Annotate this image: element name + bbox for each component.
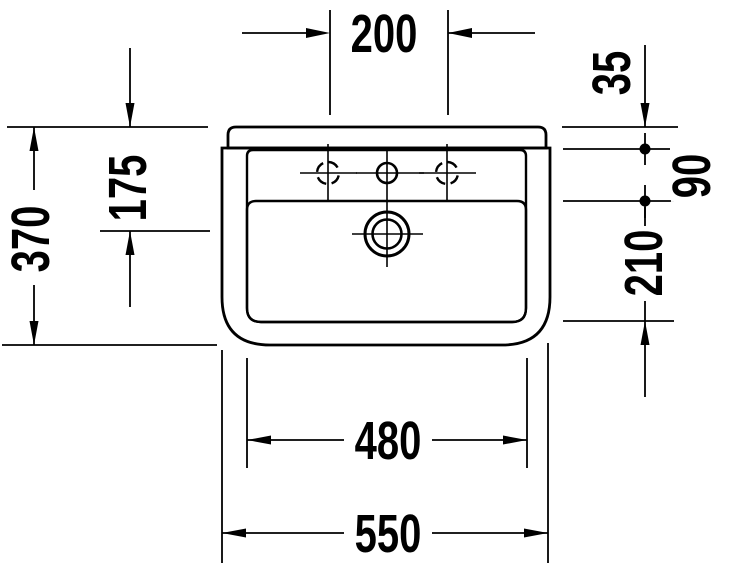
reference-dot-2 xyxy=(640,196,651,207)
reference-dot-1 xyxy=(640,144,651,155)
washbasin-outlines xyxy=(222,127,550,345)
dim-label-overall-depth: 370 xyxy=(10,202,52,276)
arrow-550-right xyxy=(524,529,548,538)
basin-outer-outline xyxy=(222,148,550,345)
arrow-480-left xyxy=(247,436,271,445)
arrow-480-right xyxy=(503,436,527,445)
basin-rear-rim-band xyxy=(228,127,546,148)
dim-label-bowl-front: 210 xyxy=(623,226,665,300)
tap-holes-and-drain xyxy=(300,144,476,267)
arrow-210-up xyxy=(641,321,650,345)
dimension-arrowheads xyxy=(30,28,651,538)
arrow-200-right xyxy=(448,28,472,38)
dim-label-tap-spacing: 200 xyxy=(347,13,421,55)
arrow-370-down xyxy=(30,321,39,345)
arrow-175-up xyxy=(126,231,135,255)
dim-label-drain-from-rear: 175 xyxy=(107,151,149,225)
arrow-35-down xyxy=(641,103,650,127)
dim-label-inner-width: 480 xyxy=(351,420,425,462)
arrow-200-left xyxy=(306,28,330,38)
dim-label-rear-rim: 35 xyxy=(591,47,633,99)
arrow-550-left xyxy=(222,529,246,538)
arrow-370-up xyxy=(30,127,39,151)
dimension-lines xyxy=(2,10,678,563)
arrow-175-down xyxy=(126,103,135,127)
washbasin-technical-drawing: 200 370 175 35 90 210 480 550 xyxy=(0,0,730,567)
dim-label-rim-to-bowl: 90 xyxy=(671,150,713,202)
dim-label-overall-width: 550 xyxy=(351,513,425,555)
